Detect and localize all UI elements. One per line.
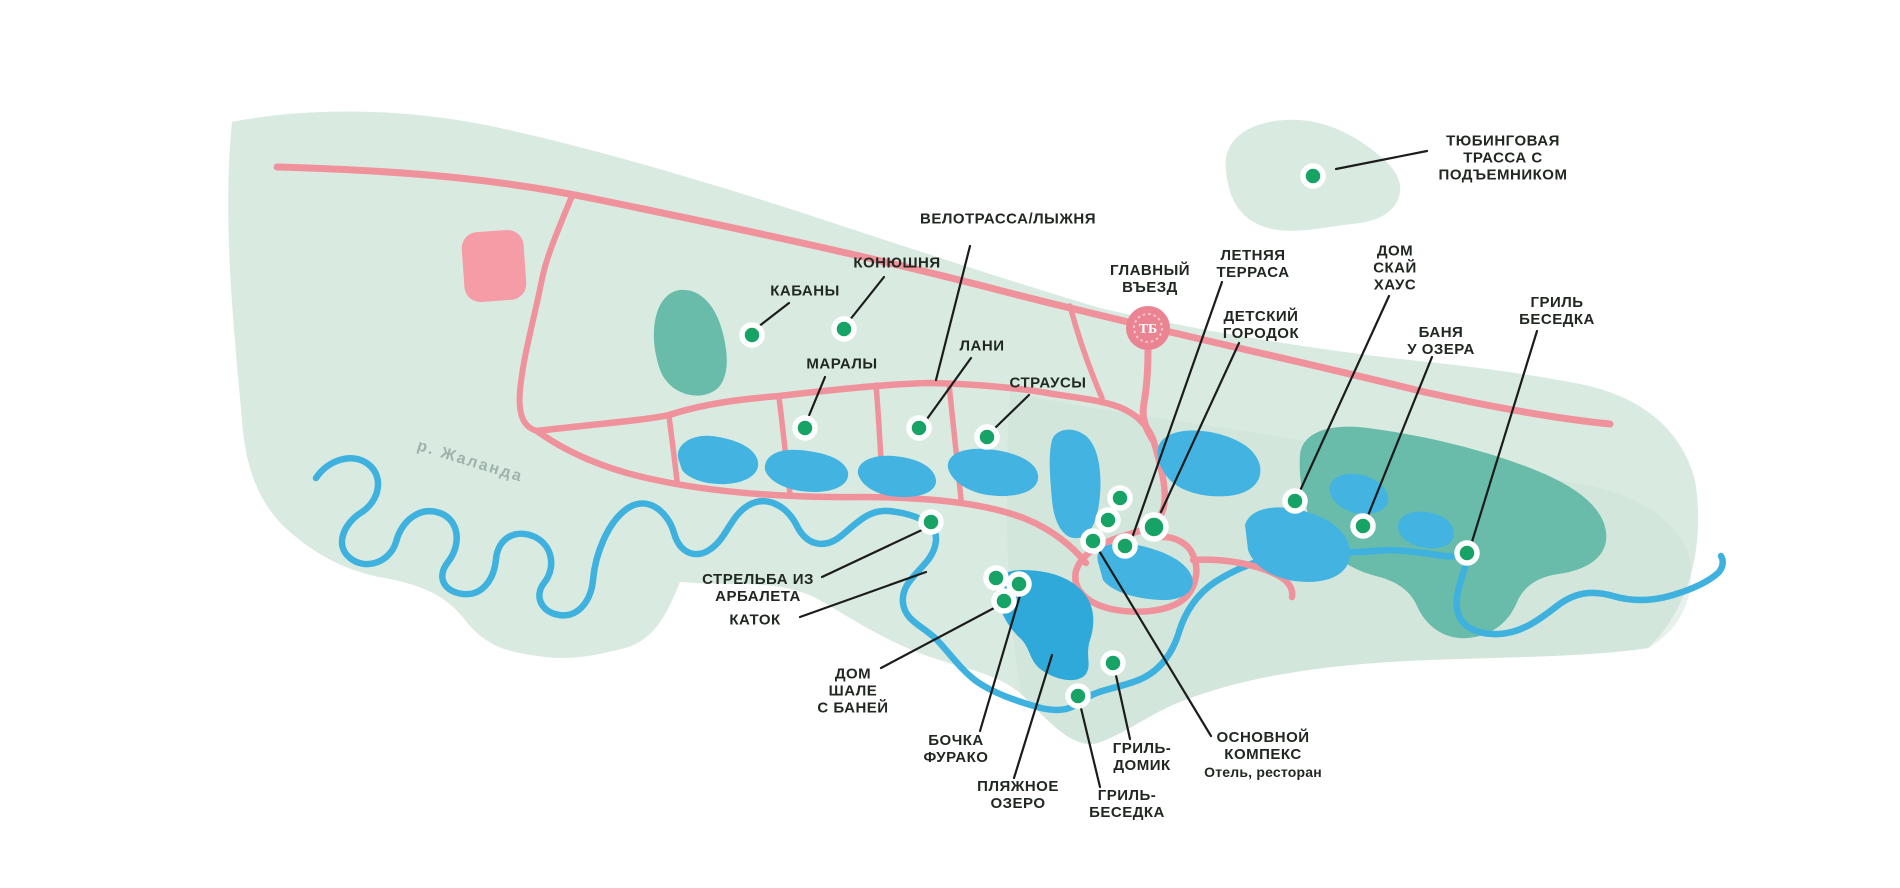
marker-detsky-gorodok[interactable] — [1142, 515, 1166, 539]
marker-osnovnoy-kompeks[interactable] — [1083, 531, 1103, 551]
marker-dom-shale-s-baney[interactable] — [994, 591, 1014, 611]
marker-gril-besedka-south[interactable] — [1068, 686, 1088, 706]
marker-kabany[interactable] — [742, 325, 762, 345]
marker-unlabeled-3[interactable] — [986, 568, 1006, 588]
marker-banya-u-ozera[interactable] — [1353, 516, 1373, 536]
marker-unlabeled-2[interactable] — [1098, 510, 1118, 530]
marker-tubing-track[interactable] — [1303, 166, 1323, 186]
lake-tall-central — [1050, 430, 1101, 539]
marker-strelba-iz-arbaleta[interactable] — [921, 512, 941, 532]
map-canvas: ТБ — [0, 0, 1900, 888]
marker-gril-domik[interactable] — [1103, 653, 1123, 673]
marker-maraly[interactable] — [795, 418, 815, 438]
marker-gril-besedka-east[interactable] — [1457, 543, 1477, 563]
marker-lani[interactable] — [909, 418, 929, 438]
marker-dom-sky-house[interactable] — [1285, 491, 1305, 511]
marker-unlabeled-1[interactable] — [1110, 488, 1130, 508]
resort-map: ТБ р. Жаланда ТЮБИНГОВАЯ ТРАССА С ПОДЪЕМ… — [0, 0, 1900, 888]
building-square — [461, 229, 528, 303]
marker-konyushnya[interactable] — [834, 319, 854, 339]
entrance-monogram: ТБ — [1139, 322, 1158, 337]
marker-bochka-furako[interactable] — [1009, 574, 1029, 594]
marker-strausy[interactable] — [977, 427, 997, 447]
main-entrance-badge[interactable]: ТБ — [1126, 306, 1170, 350]
marker-letnyaya-terrasa[interactable] — [1115, 536, 1135, 556]
